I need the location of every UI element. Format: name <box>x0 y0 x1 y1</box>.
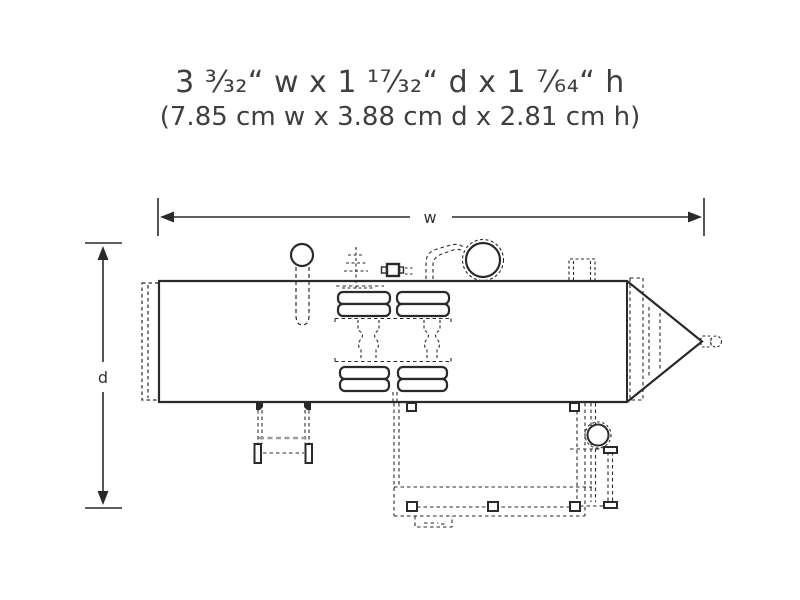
louver <box>397 292 449 304</box>
louver <box>398 367 447 379</box>
mount-square <box>407 403 416 411</box>
louver <box>338 304 390 316</box>
width-dim-left-arrow <box>160 212 174 223</box>
width-dim-label: w <box>423 208 436 227</box>
width-dim-right-arrow <box>688 212 702 223</box>
bell-hidden-marks <box>405 268 414 274</box>
coupler <box>701 336 722 347</box>
roof-hatch <box>569 259 595 280</box>
left-truck-right-foot <box>304 403 311 410</box>
mount-square <box>570 502 580 511</box>
under-frame-lower-box <box>415 516 452 527</box>
louver <box>338 292 390 304</box>
left-truck-left-bar <box>255 444 262 463</box>
louver <box>397 304 449 316</box>
width-dimension: w <box>158 198 704 236</box>
depth-dim-bottom-arrow <box>98 491 109 505</box>
left-truck <box>255 403 313 463</box>
mount-square <box>570 403 579 411</box>
product-top-view-diagram: w d <box>0 0 800 600</box>
rear-hidden-edge <box>142 283 159 400</box>
depth-dim-top-arrow <box>98 246 109 260</box>
bell-right-tab <box>400 267 404 273</box>
left-truck-right-bar <box>306 444 313 463</box>
depth-dimension: d <box>85 243 122 508</box>
bell-component <box>382 264 415 276</box>
louver <box>398 379 447 391</box>
pipe-to-dome <box>426 244 463 279</box>
louver <box>340 379 389 391</box>
louver <box>340 367 389 379</box>
under-frame <box>394 403 617 527</box>
bell-body <box>387 264 399 276</box>
under-frame-wheel <box>588 425 609 446</box>
large-dome <box>463 240 504 281</box>
depth-dim-label: d <box>98 368 108 387</box>
side-pad <box>604 502 617 508</box>
large-dome-circle <box>466 243 500 277</box>
mount-square <box>407 502 417 511</box>
side-pad <box>604 447 617 453</box>
mount-square <box>488 502 498 511</box>
bell-left-tab <box>382 267 387 273</box>
small-dome-circle <box>291 244 313 266</box>
left-truck-left-foot <box>256 403 263 410</box>
